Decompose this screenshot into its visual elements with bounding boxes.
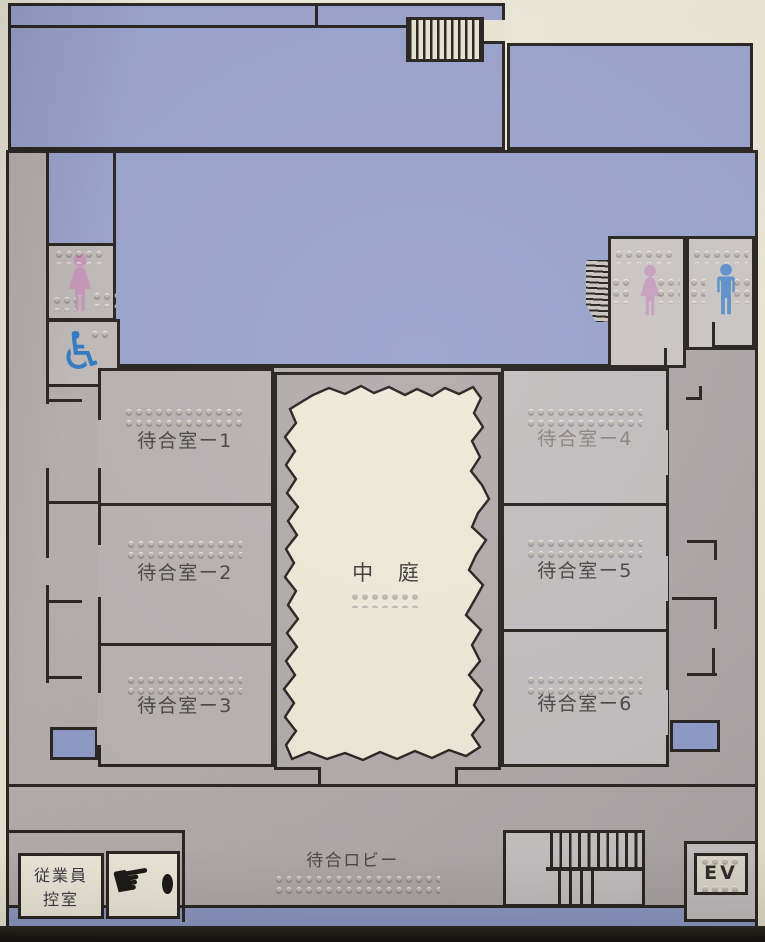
wall-lobby-top [9,784,755,787]
wall-corridor-hall [46,153,49,246]
door-opening [97,545,104,597]
room-label-waiting-4: 待合室ー4 [505,429,665,450]
wall-top-strip-divider [315,3,318,28]
staff-room-box: 従業員 控室 [18,853,104,919]
braille-dots [126,408,244,430]
braille-dots [658,278,680,304]
stairs-bottom-icon [503,830,645,907]
braille-dots [56,250,102,264]
wall-room4-room5 [504,503,666,506]
photo-bottom-edge [0,926,765,942]
braille-dots [276,875,440,895]
wall-segment [46,468,49,558]
room-label-waiting-1: 待合室ー1 [105,431,265,452]
wall-staff-area [182,830,185,922]
braille-dots [734,278,750,304]
location-dot-icon [162,874,173,894]
wall-room5-room6 [504,629,666,632]
exterior-area-top-right [507,43,753,150]
tactile-floor-plan-sign: ♿ 待合室ー1 待合室ー2 待合室ー3 中 庭 待合室ー4 待合室ー5 待合室ー… [0,0,765,942]
braille-dots [528,539,642,561]
door-jamb [687,540,717,543]
door-jamb [712,648,715,675]
door-opening [97,693,104,745]
elevator-label: EV [694,863,748,884]
braille-dots [94,292,116,308]
braille-dots [694,250,748,264]
room-label-waiting-2: 待合室ー2 [105,563,265,584]
lobby-label: 待合ロビー [285,852,420,871]
stairs-top-icon [406,17,484,62]
wall-top-strip [8,25,410,28]
braille-dots [54,296,76,312]
braille-dots [613,278,629,304]
wall-room2-room3 [101,643,271,646]
braille-dots [528,408,642,430]
wall-segment [712,345,757,348]
pointing-hand-icon: ☛ [107,853,156,905]
door-opening [97,420,104,468]
door-jamb [46,676,82,679]
wall-room1-room2 [101,503,271,506]
wall-hall-divider [113,153,116,246]
wall-segment [714,597,717,629]
door-jamb [46,399,82,402]
stairs-treads-upper [550,833,642,869]
room-label-waiting-5: 待合室ー5 [505,561,665,582]
staff-room-label-line2: 控室 [43,886,79,910]
braille-dots [128,540,242,562]
exterior-notch [484,20,505,44]
wall-segment [46,501,101,504]
braille-dots [352,592,422,608]
wall-staff-area [9,830,185,833]
braille-dots [616,250,676,264]
door-jamb [699,386,702,400]
stairs-treads-lower [558,871,596,904]
braille-dots [92,330,112,342]
courtyard-label: 中 庭 [330,562,450,585]
door-jamb [46,600,82,603]
wall-segment [664,348,667,365]
door-jamb [714,540,717,560]
blue-floor-marker-left [50,727,98,760]
braille-dots [702,885,738,892]
braille-dots [691,278,705,304]
wall-segment [672,597,717,600]
room-label-waiting-6: 待合室ー6 [505,694,665,715]
current-location-box: ☛ [106,851,180,919]
room-label-waiting-3: 待合室ー3 [105,696,265,717]
blue-floor-marker-right [670,720,720,752]
staff-room-label-line1: 従業員 [34,862,88,886]
